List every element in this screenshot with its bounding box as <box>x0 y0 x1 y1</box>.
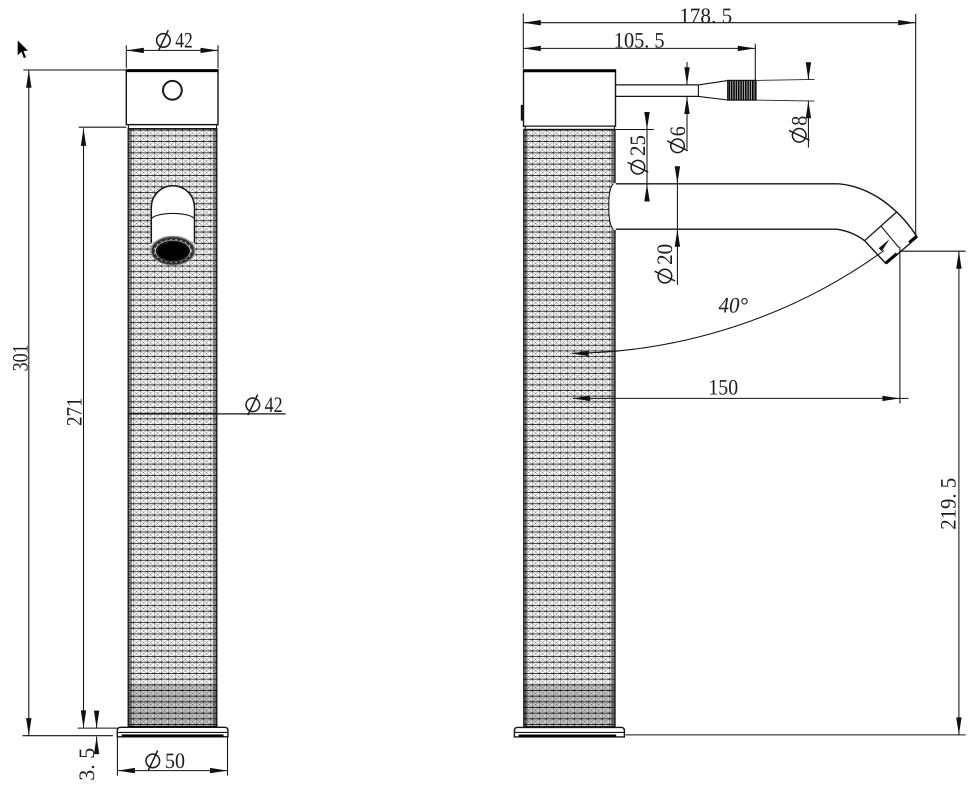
svg-text:25: 25 <box>625 135 650 156</box>
svg-text:42: 42 <box>265 392 283 417</box>
svg-text:42: 42 <box>175 28 193 53</box>
svg-text:219. 5: 219. 5 <box>935 478 960 530</box>
svg-text:3. 5: 3. 5 <box>74 748 99 781</box>
svg-text:40°: 40° <box>719 293 749 318</box>
svg-text:271: 271 <box>61 397 86 426</box>
svg-text:20: 20 <box>652 244 677 265</box>
svg-text:8: 8 <box>787 116 812 126</box>
svg-text:6: 6 <box>665 126 690 136</box>
svg-text:301: 301 <box>8 344 33 371</box>
svg-text:150: 150 <box>708 375 738 400</box>
svg-text:50: 50 <box>165 748 185 773</box>
svg-text:178. 5: 178. 5 <box>679 3 732 28</box>
svg-text:105. 5: 105. 5 <box>614 27 665 52</box>
